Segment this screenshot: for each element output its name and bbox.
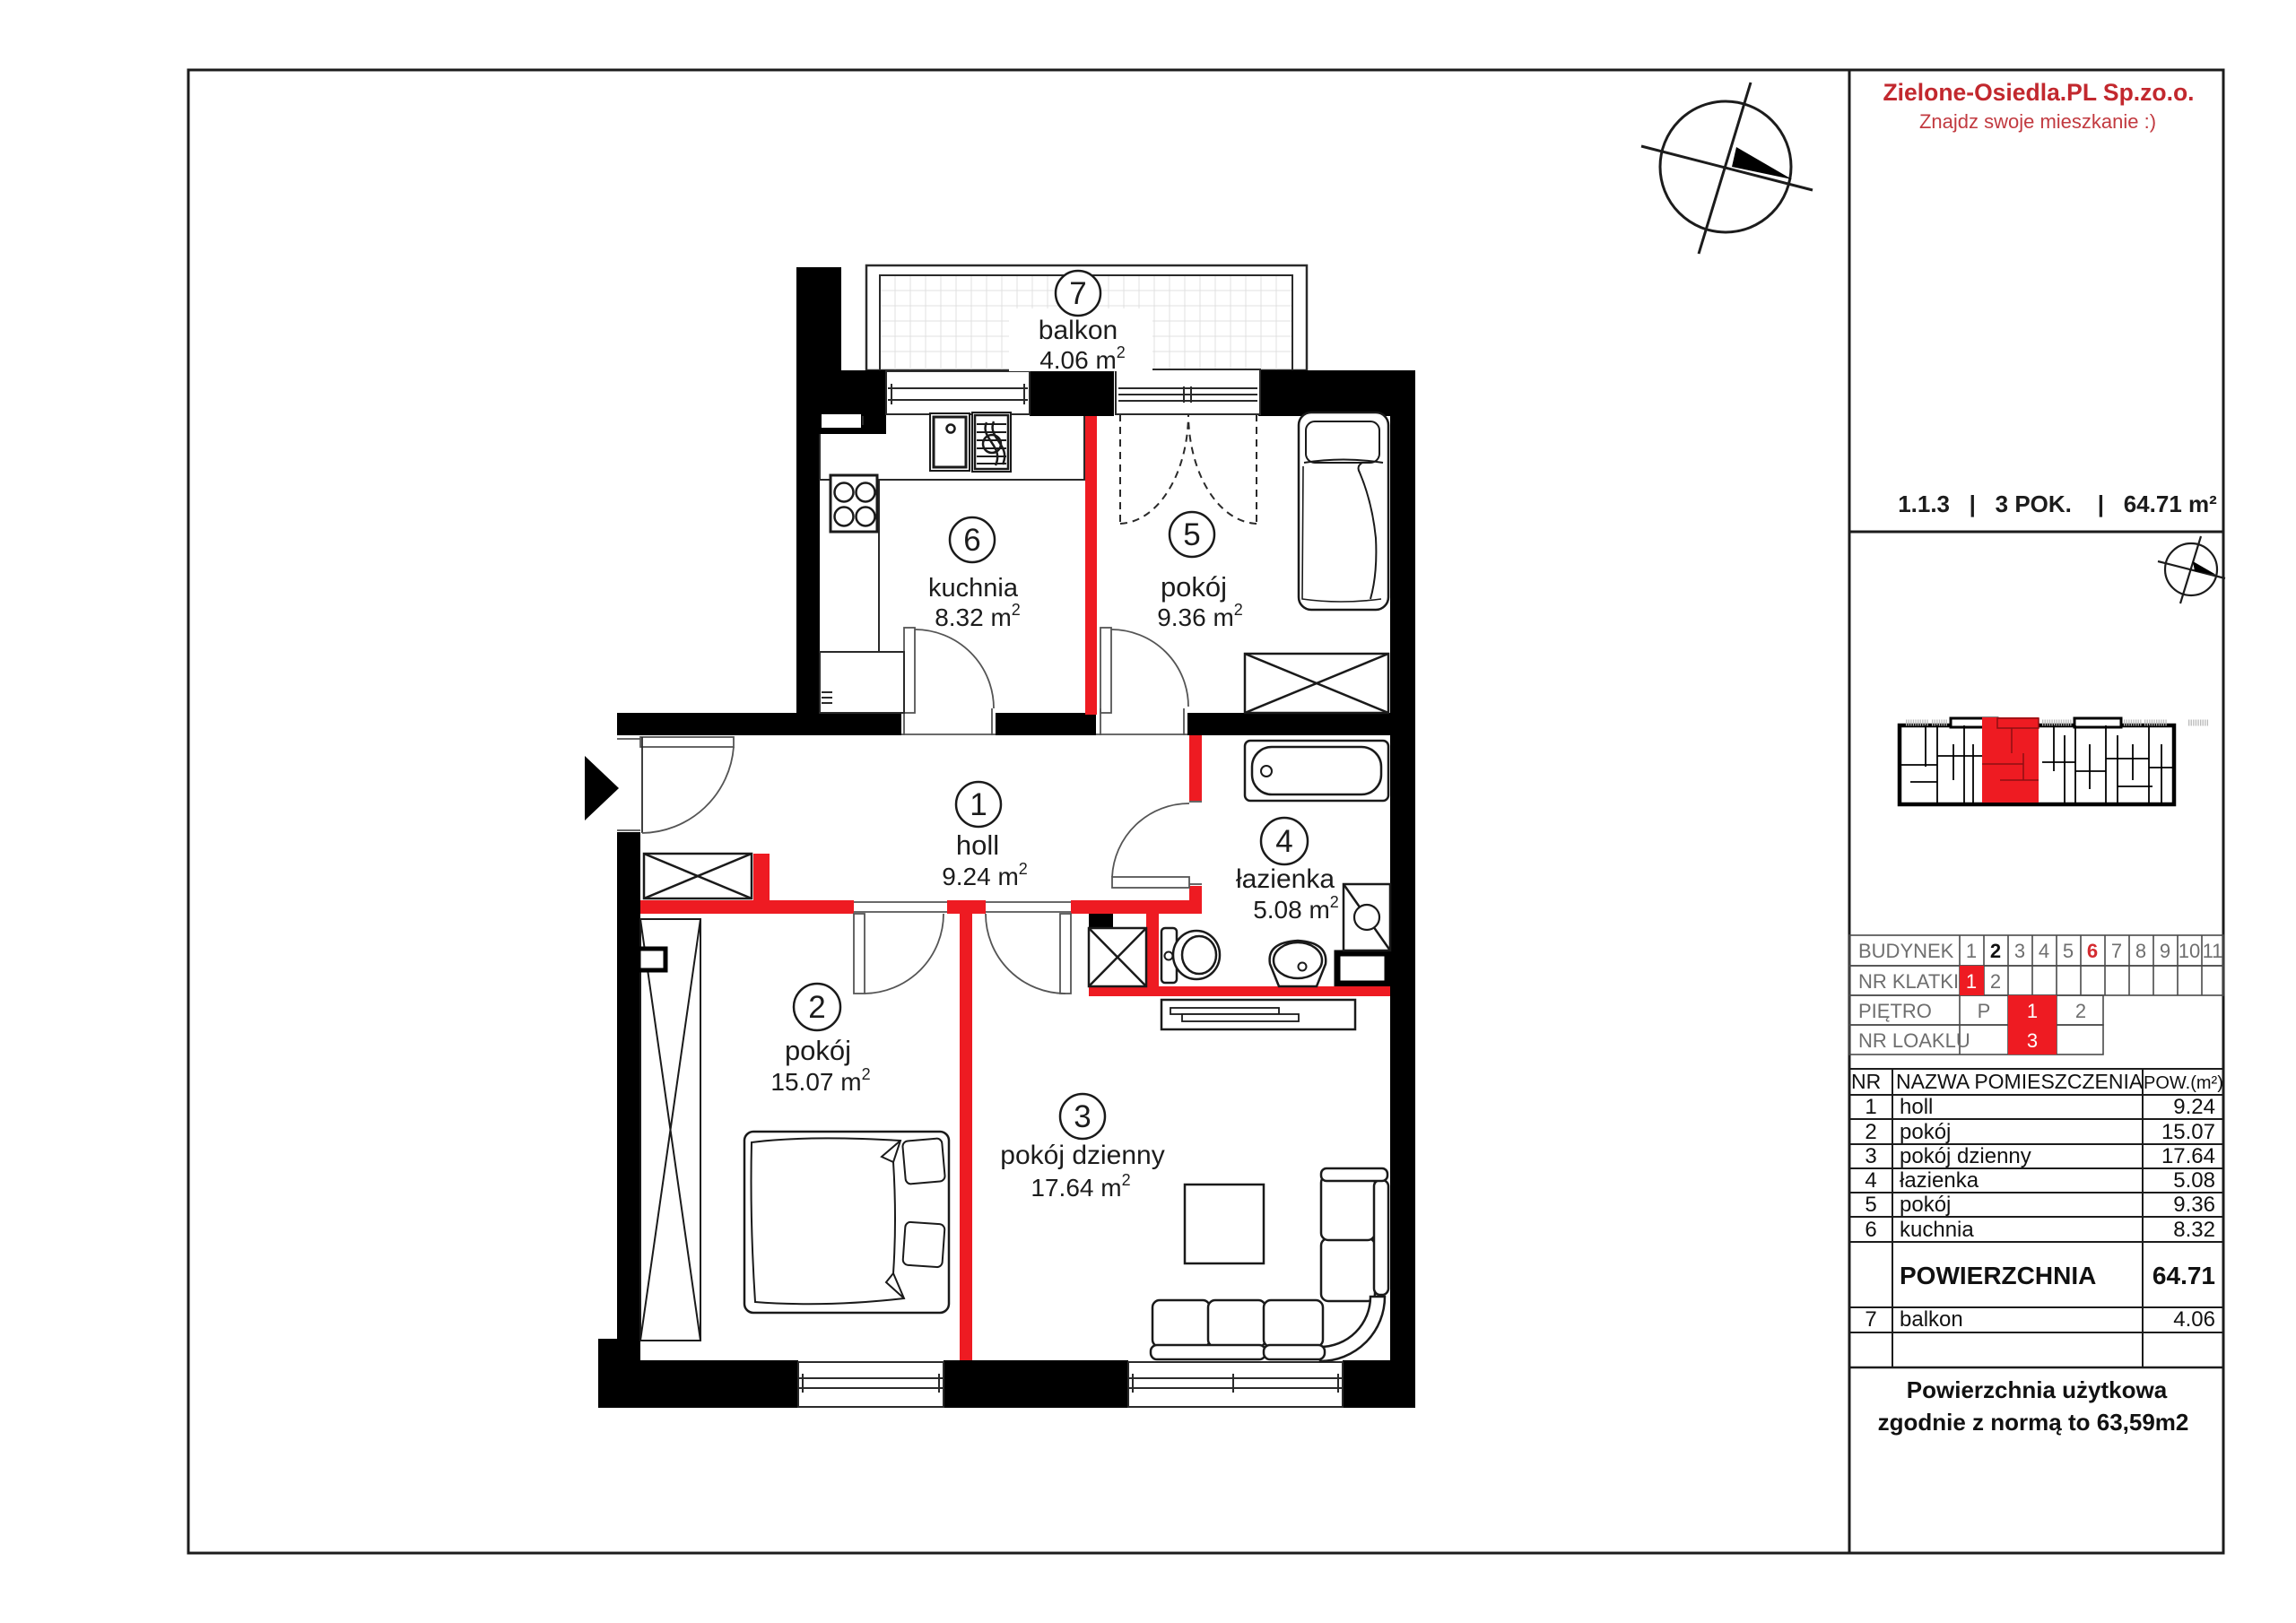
svg-text:PIĘTRO: PIĘTRO bbox=[1858, 1000, 1932, 1022]
svg-text:9.24: 9.24 bbox=[2173, 1095, 2215, 1119]
svg-text:1: 1 bbox=[1865, 1095, 1876, 1119]
svg-text:Znajdz swoje mieszkanie :): Znajdz swoje mieszkanie :) bbox=[1919, 110, 2156, 133]
svg-text:6: 6 bbox=[1865, 1218, 1876, 1242]
svg-text:7: 7 bbox=[2111, 940, 2122, 962]
svg-text:8.32 m2: 8.32 m2 bbox=[935, 601, 1021, 631]
svg-text:kuchnia: kuchnia bbox=[1900, 1218, 1974, 1242]
svg-text:pokój dzienny: pokój dzienny bbox=[1900, 1144, 2031, 1168]
svg-text:1: 1 bbox=[970, 787, 987, 822]
svg-text:3: 3 bbox=[1865, 1144, 1876, 1168]
svg-text:17.64: 17.64 bbox=[2161, 1144, 2215, 1168]
svg-text:Zielone-Osiedla.PL Sp.zo.o.: Zielone-Osiedla.PL Sp.zo.o. bbox=[1883, 79, 2194, 106]
svg-text:5: 5 bbox=[2063, 940, 2074, 962]
svg-text:2: 2 bbox=[1865, 1120, 1876, 1144]
svg-text:2: 2 bbox=[1990, 940, 2001, 962]
svg-text:balkon: balkon bbox=[1039, 316, 1118, 345]
svg-text:NR LOAKLU: NR LOAKLU bbox=[1858, 1029, 1970, 1052]
svg-text:1: 1 bbox=[1966, 970, 1977, 993]
svg-text:NR KLATKI: NR KLATKI bbox=[1858, 970, 1959, 993]
svg-text:NAZWA POMIESZCZENIA: NAZWA POMIESZCZENIA bbox=[1896, 1070, 2144, 1093]
svg-text:4.06: 4.06 bbox=[2173, 1307, 2215, 1332]
svg-text:holl: holl bbox=[1900, 1095, 1933, 1119]
svg-text:P: P bbox=[1978, 1000, 1991, 1022]
svg-text:3: 3 bbox=[2014, 940, 2025, 962]
svg-text:kuchnia: kuchnia bbox=[928, 574, 1019, 603]
svg-text:1: 1 bbox=[2027, 1000, 2038, 1022]
svg-text:4: 4 bbox=[1275, 824, 1292, 859]
svg-text:9.36 m2: 9.36 m2 bbox=[1157, 601, 1243, 631]
svg-text:1.1.3 | 3 POK. | 64.7: 1.1.3 | 3 POK. | 64.71 m² bbox=[1898, 490, 2217, 517]
svg-text:15.07: 15.07 bbox=[2161, 1120, 2215, 1144]
svg-text:5.08: 5.08 bbox=[2173, 1168, 2215, 1193]
svg-text:10: 10 bbox=[2179, 940, 2200, 962]
svg-text:6: 6 bbox=[963, 523, 980, 558]
svg-text:15.07 m2: 15.07 m2 bbox=[770, 1065, 870, 1096]
svg-text:9.36: 9.36 bbox=[2173, 1193, 2215, 1217]
svg-text:8: 8 bbox=[2135, 940, 2146, 962]
svg-text:6: 6 bbox=[2087, 940, 2098, 962]
svg-text:5.08 m2: 5.08 m2 bbox=[1253, 893, 1339, 924]
svg-text:2: 2 bbox=[1990, 970, 2001, 993]
svg-text:3: 3 bbox=[1074, 1099, 1091, 1134]
svg-text:POWIERZCHNIA: POWIERZCHNIA bbox=[1900, 1262, 2096, 1289]
svg-text:2: 2 bbox=[2075, 1000, 2086, 1022]
svg-text:4.06 m2: 4.06 m2 bbox=[1039, 343, 1126, 374]
svg-text:17.64 m2: 17.64 m2 bbox=[1031, 1171, 1130, 1202]
svg-text:NR: NR bbox=[1851, 1070, 1881, 1093]
svg-text:łazienka: łazienka bbox=[1900, 1168, 1979, 1193]
svg-text:7: 7 bbox=[1865, 1307, 1876, 1332]
svg-text:5: 5 bbox=[1183, 517, 1200, 552]
svg-text:POW.(m²): POW.(m²) bbox=[2144, 1073, 2223, 1093]
svg-text:pokój dzienny: pokój dzienny bbox=[1000, 1141, 1164, 1170]
svg-text:balkon: balkon bbox=[1900, 1307, 1963, 1332]
svg-text:BUDYNEK: BUDYNEK bbox=[1858, 940, 1954, 962]
svg-text:4: 4 bbox=[2039, 940, 2049, 962]
svg-text:7: 7 bbox=[1069, 276, 1086, 311]
svg-text:11: 11 bbox=[2203, 940, 2223, 962]
svg-text:Powierzchnia użytkowa: Powierzchnia użytkowa bbox=[1907, 1376, 2168, 1403]
svg-text:9.24 m2: 9.24 m2 bbox=[942, 860, 1028, 890]
svg-text:zgodnie z normą to 63,59m2: zgodnie z normą to 63,59m2 bbox=[1878, 1409, 2189, 1436]
svg-text:3: 3 bbox=[2027, 1029, 2038, 1052]
svg-text:9: 9 bbox=[2160, 940, 2170, 962]
svg-text:1: 1 bbox=[1966, 940, 1977, 962]
svg-text:64.71: 64.71 bbox=[2152, 1262, 2215, 1289]
svg-text:8.32: 8.32 bbox=[2173, 1218, 2215, 1242]
svg-text:pokój: pokój bbox=[1161, 571, 1227, 603]
svg-text:holl: holl bbox=[956, 829, 999, 861]
svg-text:łazienka: łazienka bbox=[1236, 864, 1335, 894]
svg-text:pokój: pokój bbox=[1900, 1120, 1951, 1144]
svg-text:2: 2 bbox=[808, 990, 825, 1025]
svg-text:4: 4 bbox=[1865, 1168, 1876, 1193]
svg-text:5: 5 bbox=[1865, 1193, 1876, 1217]
svg-text:pokój: pokój bbox=[1900, 1193, 1951, 1217]
svg-text:pokój: pokój bbox=[785, 1035, 851, 1066]
